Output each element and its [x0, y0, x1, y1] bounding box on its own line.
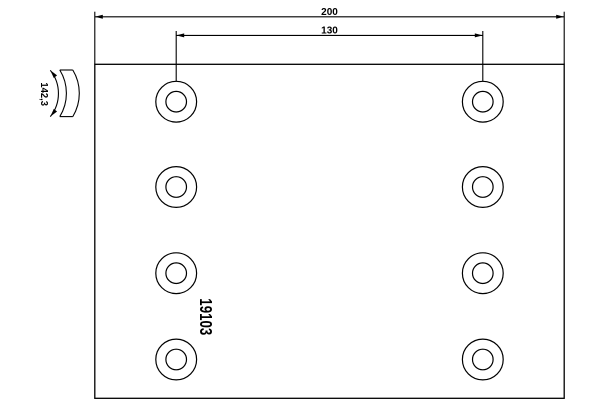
svg-text:130: 130: [321, 25, 338, 36]
svg-text:200: 200: [321, 7, 338, 18]
svg-text:142,3: 142,3: [38, 82, 49, 106]
svg-text:19103: 19103: [196, 298, 216, 335]
